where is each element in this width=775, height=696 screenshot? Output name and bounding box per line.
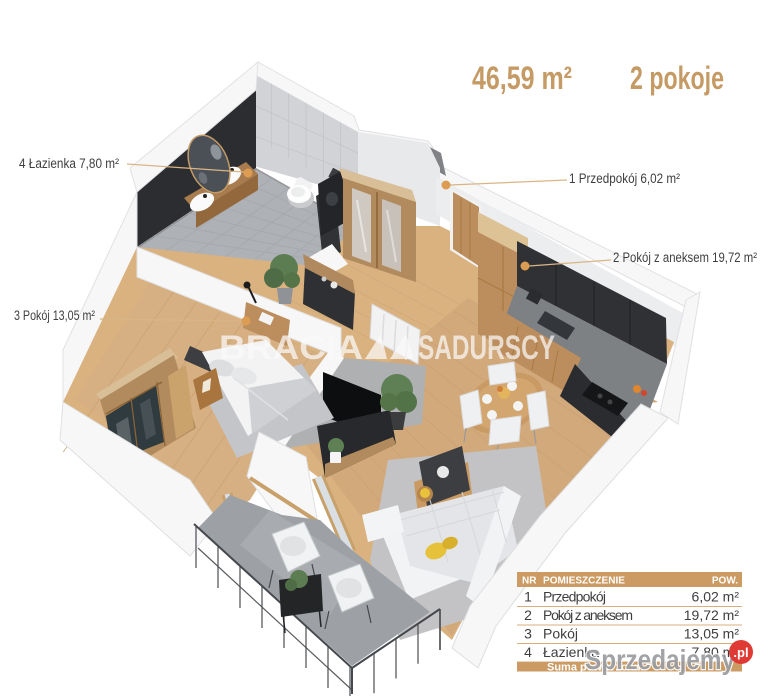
svg-text:.pl: .pl: [733, 645, 748, 660]
svg-text:3: 3: [524, 626, 532, 642]
svg-text:4: 4: [524, 644, 532, 660]
svg-text:13,05 m²: 13,05 m²: [684, 626, 740, 642]
svg-text:SADURSCY: SADURSCY: [418, 329, 555, 367]
svg-text:Sprzedajemy: Sprzedajemy: [585, 644, 735, 675]
svg-text:46,59 m²: 46,59 m²: [472, 60, 572, 96]
svg-text:Pokój z aneksem: Pokój z aneksem: [543, 607, 633, 623]
svg-text:3 Pokój 13,05 m²: 3 Pokój 13,05 m²: [14, 308, 95, 323]
svg-text:NR: NR: [522, 576, 537, 587]
svg-text:2: 2: [524, 607, 532, 623]
svg-text:POMIESZCZENIE: POMIESZCZENIE: [543, 576, 625, 587]
svg-text:6,02 m²: 6,02 m²: [692, 589, 740, 605]
svg-text:4 Łazienka 7,80 m²: 4 Łazienka 7,80 m²: [19, 156, 119, 171]
svg-text:2 Pokój z aneksem 19,72 m²: 2 Pokój z aneksem 19,72 m²: [613, 250, 757, 265]
svg-text:BRACIA: BRACIA: [219, 329, 363, 367]
svg-text:1: 1: [524, 589, 532, 605]
svg-text:19,72 m²: 19,72 m²: [684, 607, 740, 623]
svg-text:1 Przedpokój 6,02 m²: 1 Przedpokój 6,02 m²: [569, 171, 680, 186]
svg-text:Pokój: Pokój: [543, 626, 578, 642]
svg-text:2 pokoje: 2 pokoje: [630, 60, 724, 96]
svg-text:Przedpokój: Przedpokój: [543, 589, 606, 605]
svg-text:POW.: POW.: [712, 576, 738, 587]
